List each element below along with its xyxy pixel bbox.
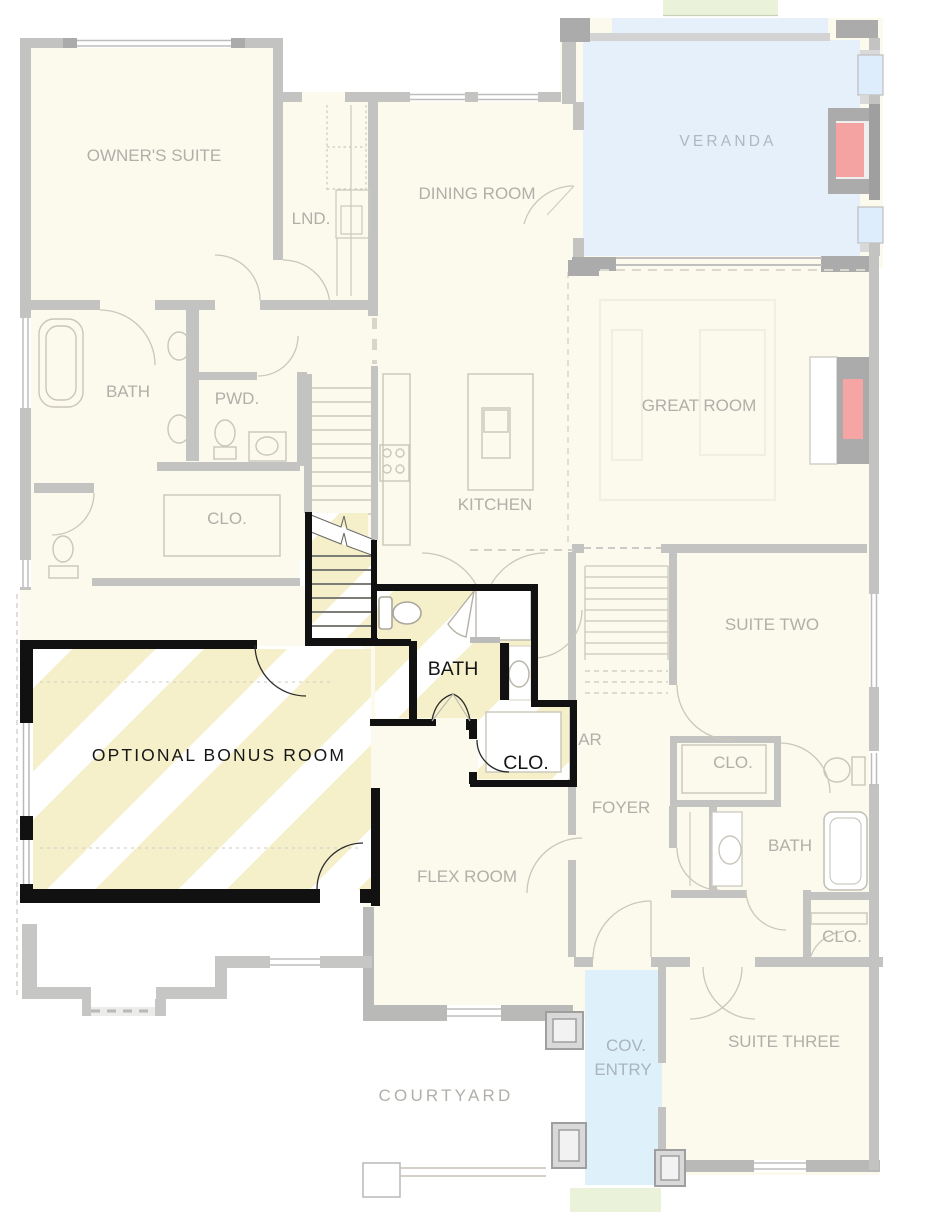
- svg-text:AR: AR: [578, 730, 602, 749]
- svg-text:PWD.: PWD.: [215, 389, 259, 408]
- svg-text:CLO.: CLO.: [503, 752, 549, 774]
- svg-text:CLO.: CLO.: [207, 509, 247, 528]
- svg-text:COV.: COV.: [606, 1036, 646, 1055]
- svg-text:FLEX ROOM: FLEX ROOM: [417, 867, 517, 886]
- svg-text:CLO.: CLO.: [822, 927, 862, 946]
- svg-text:BATH: BATH: [768, 836, 812, 855]
- svg-text:COURTYARD: COURTYARD: [379, 1086, 514, 1105]
- svg-text:SUITE TWO: SUITE TWO: [725, 615, 819, 634]
- svg-text:KITCHEN: KITCHEN: [458, 495, 533, 514]
- svg-text:BATH: BATH: [428, 658, 479, 680]
- svg-text:BATH: BATH: [106, 382, 150, 401]
- svg-text:ENTRY: ENTRY: [594, 1060, 651, 1079]
- svg-text:SUITE THREE: SUITE THREE: [728, 1032, 840, 1051]
- svg-text:DINING ROOM: DINING ROOM: [418, 184, 535, 203]
- svg-text:VERANDA: VERANDA: [679, 133, 776, 150]
- svg-text:OPTIONAL BONUS ROOM: OPTIONAL BONUS ROOM: [92, 745, 346, 765]
- svg-text:CLO.: CLO.: [713, 753, 753, 772]
- svg-text:GREAT ROOM: GREAT ROOM: [642, 396, 757, 415]
- svg-text:LND.: LND.: [292, 209, 331, 228]
- svg-text:OWNER'S SUITE: OWNER'S SUITE: [87, 146, 222, 165]
- svg-text:FOYER: FOYER: [592, 798, 651, 817]
